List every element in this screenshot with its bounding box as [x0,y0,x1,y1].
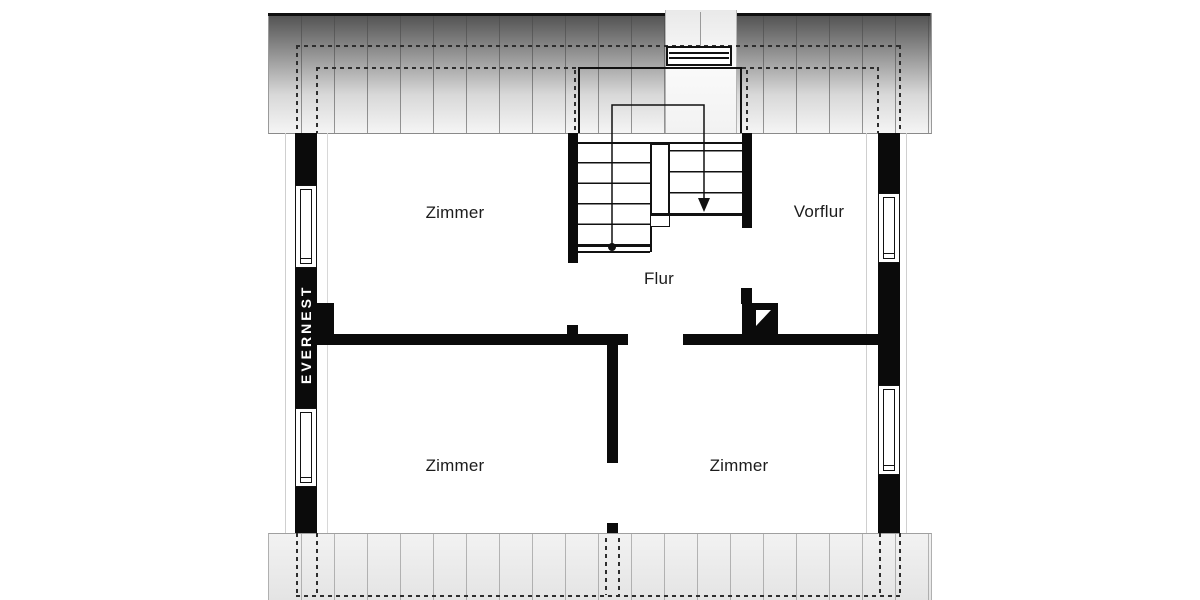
interior-wall-horizontal-right [683,334,878,345]
window-left-bottom [295,408,317,487]
stairwell-opening-outline [578,67,742,133]
window-left-top [295,185,317,268]
stair-wall-left [568,133,578,263]
roof-window [666,46,732,66]
dashed-bottom-center-left [605,538,607,595]
chimney-stub [741,288,752,304]
dashed-roofline-inner-right [877,67,879,133]
roof-edge-line-right [735,13,930,16]
dashed-bottom-center-right [618,538,620,595]
dashed-stairwell-flank-left [574,70,576,133]
stair-wall-right [742,133,752,228]
dashed-bottom-right-outer [899,533,901,595]
dashed-roofline-inner-top-left [316,67,578,69]
stair-winder-step [650,215,670,227]
room-label-zimmer-bottom-left: Zimmer [426,456,485,476]
interior-wall-vertical-center [607,345,618,463]
dashed-bottom-left-inner [316,533,318,595]
eave-line-left-outer [285,133,286,533]
roof-window-glazing-line [669,57,729,59]
window-right-bottom [878,385,900,475]
roof-band-bottom [268,533,932,600]
dashed-roofline-bottom [296,595,901,597]
stair-flight-left [578,143,650,247]
dashed-bottom-left-outer [296,533,298,595]
room-label-vorflur: Vorflur [794,202,845,222]
roof-edge-line-left [268,13,665,16]
dashed-roofline-inner-top-right [742,67,879,69]
roof-window-glazing-line [669,52,729,54]
room-label-flur: Flur [644,269,674,289]
interior-wall-bottom-stub [607,523,618,533]
evernest-logo: EVERNEST [294,263,318,405]
eave-line-right-outer [906,133,907,533]
window-right-top [878,193,900,263]
chimney [742,303,778,338]
dashed-roofline-outer-top [296,45,901,47]
height-line-right-inner [866,133,867,533]
door-jamb-stub [567,325,578,334]
dashed-roofline-inner-left [316,67,318,133]
dashed-roofline-outer-left [296,45,298,133]
stair-tread-line [578,251,650,253]
floorplan-canvas: Zimmer Vorflur Flur Zimmer Zimmer EVERNE… [0,0,1200,600]
dashed-stairwell-flank-right [746,70,748,133]
dormer-center-line [700,12,701,48]
stair-flight-divider-line [650,227,652,252]
dashed-roofline-outer-right [899,45,901,133]
room-label-zimmer-top-left: Zimmer [426,203,485,223]
stair-flight-right [670,150,742,215]
stair-newel-wall [650,143,670,215]
interior-wall-horizontal-left [311,334,628,345]
dashed-bottom-right-inner [879,533,881,595]
room-label-zimmer-bottom-right: Zimmer [710,456,769,476]
